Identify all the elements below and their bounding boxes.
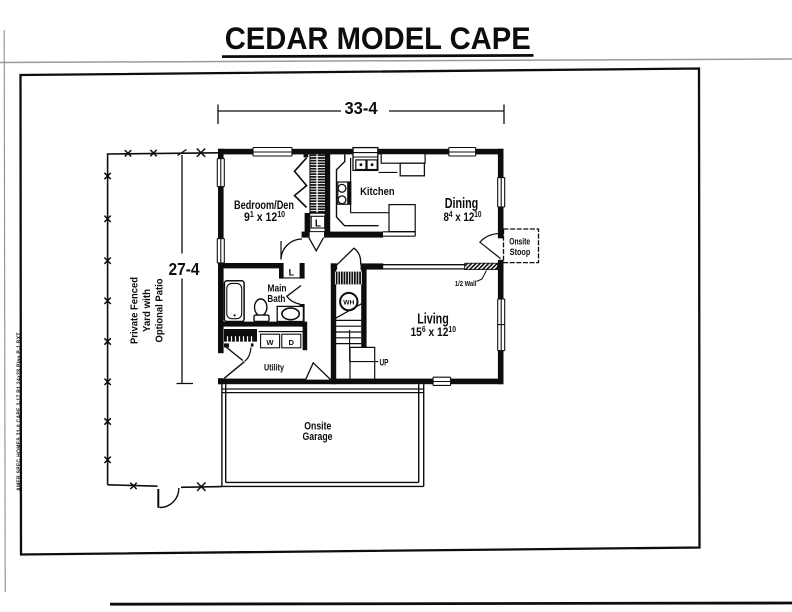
svg-text:AMER SPEC HOMES 31-0 CAPE 3-17: AMER SPEC HOMES 31-0 CAPE 3-17 R1 24x28 … bbox=[17, 332, 23, 491]
svg-text:Garage: Garage bbox=[303, 431, 333, 443]
svg-text:UP: UP bbox=[380, 357, 389, 367]
svg-text:Stoop: Stoop bbox=[510, 247, 531, 257]
svg-text:W: W bbox=[266, 338, 274, 347]
svg-text:91 x 1210: 91 x 1210 bbox=[244, 210, 285, 224]
svg-text:84 x 1210: 84 x 1210 bbox=[444, 210, 482, 224]
svg-text:Main: Main bbox=[268, 283, 287, 295]
svg-text:CEDAR MODEL CAPE: CEDAR MODEL CAPE bbox=[225, 20, 531, 56]
svg-text:Bath: Bath bbox=[267, 294, 285, 305]
svg-text:33-4: 33-4 bbox=[345, 98, 378, 118]
svg-text:Optional Patio: Optional Patio bbox=[154, 279, 166, 343]
svg-text:D: D bbox=[288, 338, 294, 347]
svg-text:L: L bbox=[315, 218, 321, 229]
svg-text:27-4: 27-4 bbox=[169, 259, 200, 279]
svg-text:Onsite: Onsite bbox=[509, 237, 530, 247]
svg-text:Kitchen: Kitchen bbox=[360, 186, 395, 198]
svg-text:156 x 1210: 156 x 1210 bbox=[411, 325, 457, 339]
svg-text:Private Fenced: Private Fenced bbox=[129, 277, 141, 344]
svg-text:Utility: Utility bbox=[264, 363, 284, 374]
svg-text:WH: WH bbox=[343, 299, 354, 306]
svg-text:Yard with: Yard with bbox=[141, 289, 153, 332]
svg-text:1/2 Wall: 1/2 Wall bbox=[455, 279, 477, 288]
svg-text:L: L bbox=[289, 267, 295, 277]
